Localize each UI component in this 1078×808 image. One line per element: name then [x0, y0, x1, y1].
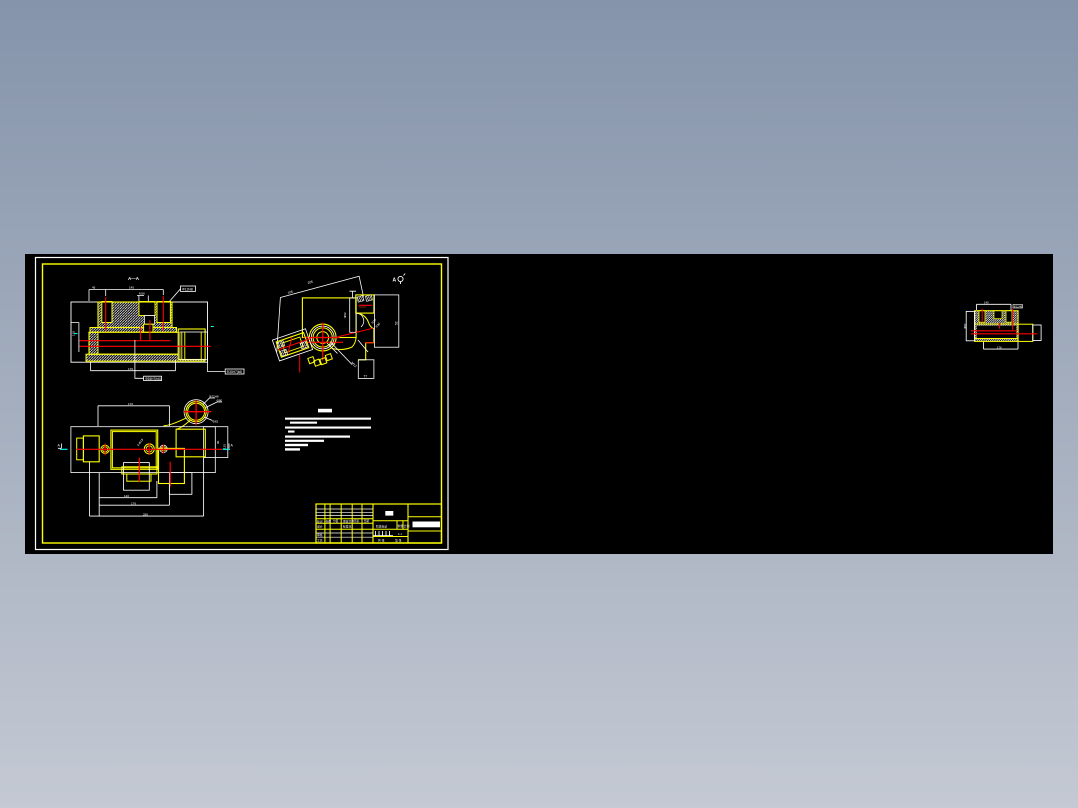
svg-text:分区: 分区: [333, 519, 339, 523]
svg-text:Φ62: Φ62: [343, 312, 347, 318]
svg-text:52: 52: [395, 321, 399, 325]
svg-text:Φ12H8: Φ12H8: [182, 287, 193, 291]
svg-text:176: 176: [128, 367, 133, 371]
svg-text:重量: 重量: [398, 524, 404, 528]
svg-text:176: 176: [131, 501, 136, 505]
svg-text:Φ80: Φ80: [963, 323, 967, 329]
svg-text:标记: 标记: [317, 520, 323, 524]
svg-text:阶段标记: 阶段标记: [376, 525, 387, 529]
svg-text:125: 125: [223, 444, 227, 449]
svg-text:共 张: 共 张: [378, 539, 385, 543]
svg-text:签名: 签名: [354, 519, 360, 523]
svg-text:更改文件: 更改文件: [343, 520, 354, 524]
svg-text:140: 140: [124, 494, 129, 498]
svg-text:Φ12H8: Φ12H8: [1014, 305, 1023, 309]
svg-text:145: 145: [129, 286, 134, 290]
svg-text:审核: 审核: [317, 533, 323, 537]
svg-text:Φ62: Φ62: [213, 420, 219, 424]
svg-text:45: 45: [92, 286, 96, 290]
svg-text:标准化: 标准化: [343, 525, 352, 529]
svg-text:1:1: 1:1: [398, 532, 402, 536]
svg-text:90: 90: [216, 440, 220, 444]
svg-text:Φ80: Φ80: [217, 398, 223, 402]
svg-text:Φ35H7(h6): Φ35H7(h6): [145, 377, 161, 381]
svg-text:M16: M16: [139, 292, 145, 296]
svg-text:工艺: 工艺: [317, 539, 323, 543]
svg-text:145: 145: [984, 301, 989, 305]
svg-text:A—A: A—A: [128, 276, 140, 281]
svg-text:日期: 日期: [364, 519, 370, 523]
svg-text:A: A: [393, 278, 397, 284]
svg-text:77: 77: [364, 375, 368, 379]
svg-text:170: 170: [128, 402, 133, 406]
svg-text:设计: 设计: [317, 525, 323, 529]
svg-text:处数: 处数: [326, 520, 332, 524]
svg-text:比例: 比例: [404, 524, 410, 528]
svg-text:176: 176: [997, 345, 1002, 349]
svg-text:250: 250: [143, 512, 148, 516]
svg-text:第 张: 第 张: [395, 539, 402, 543]
svg-text:Φ30H7(k6): Φ30H7(k6): [227, 370, 243, 374]
